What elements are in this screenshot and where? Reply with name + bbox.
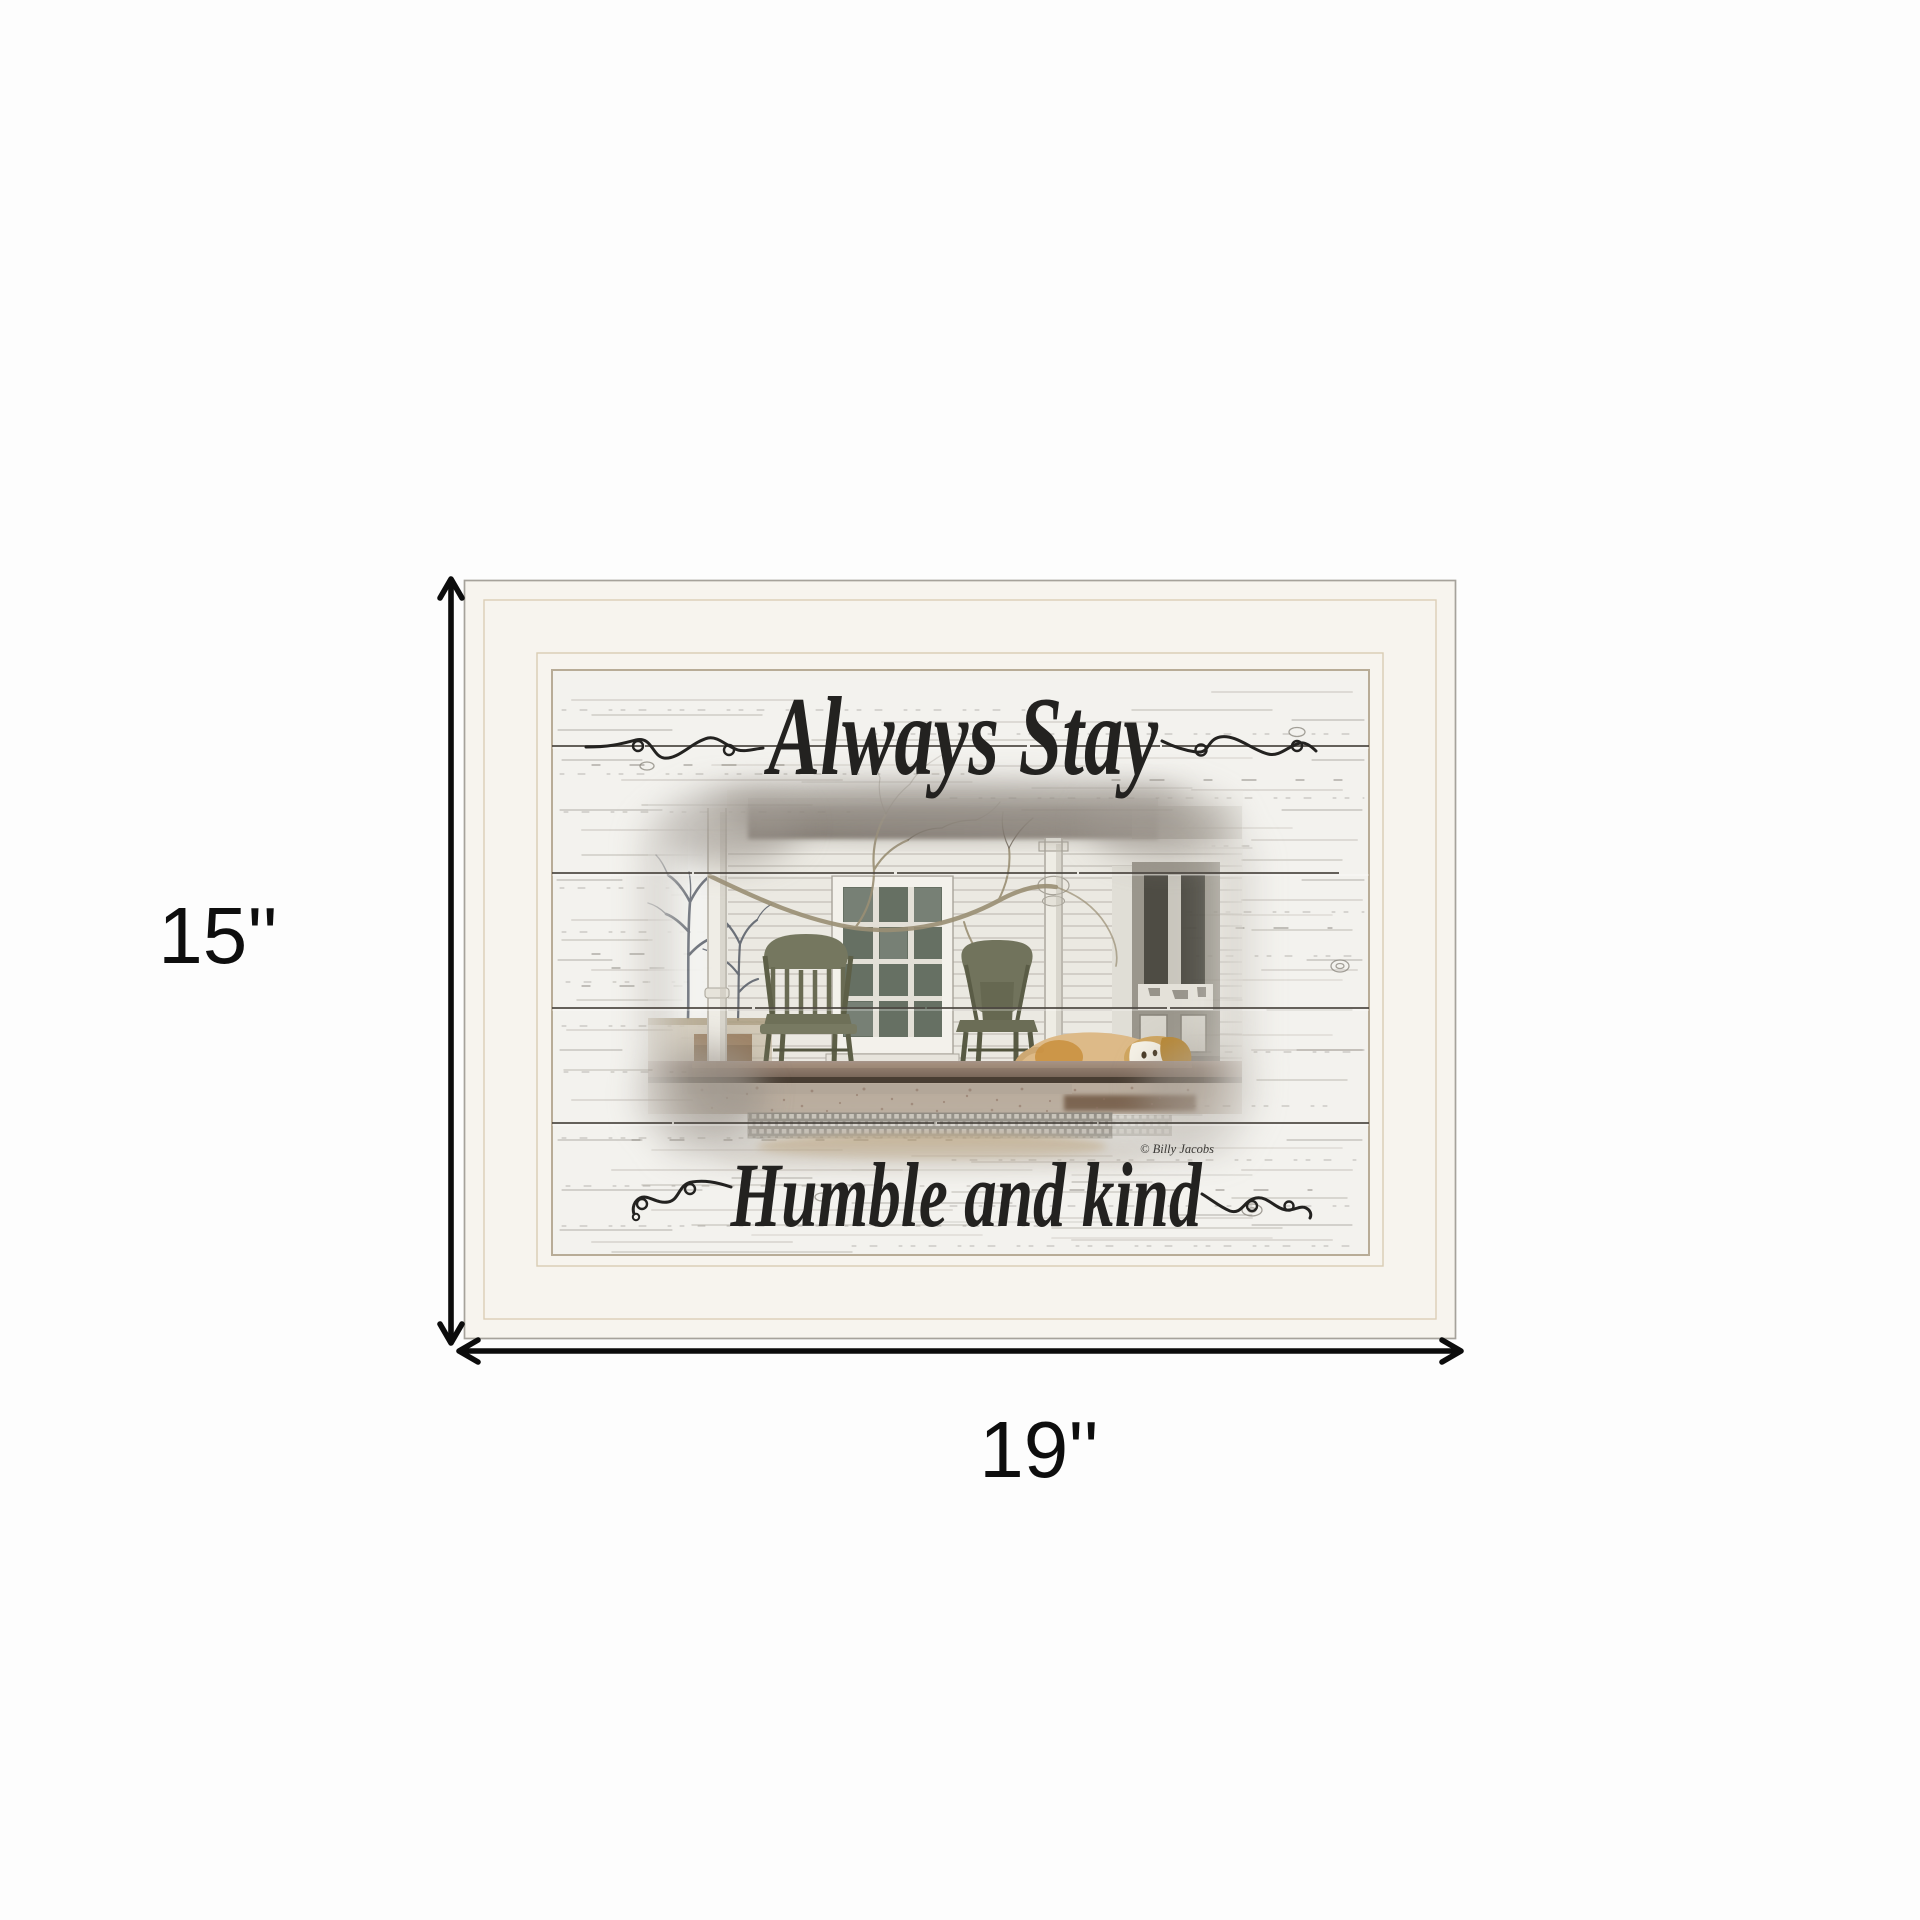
svg-text:19'': 19'' [979, 1405, 1099, 1494]
svg-text:Humble and kind: Humble and kind [730, 1144, 1203, 1246]
svg-text:15'': 15'' [158, 891, 278, 980]
svg-text:Always Stay: Always Stay [764, 675, 1159, 799]
